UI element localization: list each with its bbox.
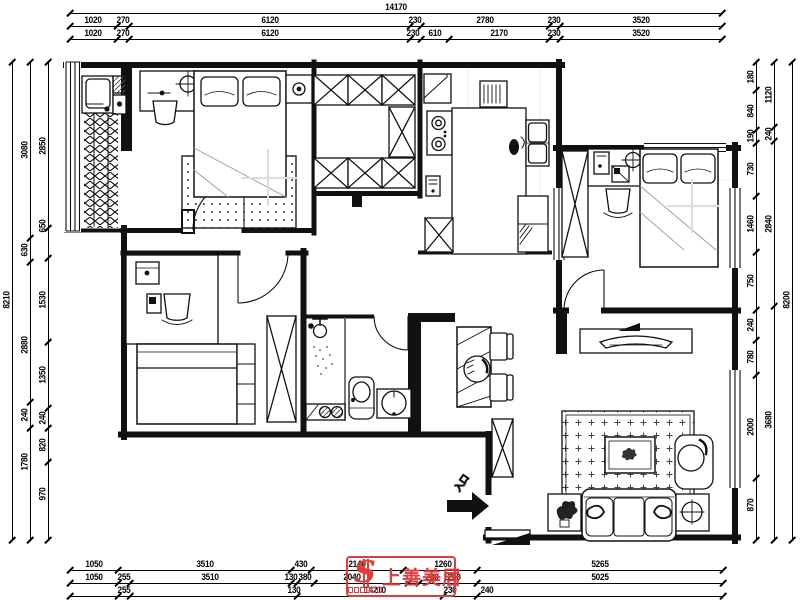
dimension-label: 870 xyxy=(747,499,756,512)
dimension-label: 240 xyxy=(765,128,774,141)
dimension-label: 130 xyxy=(288,586,301,595)
dimension-tick xyxy=(788,536,795,543)
dimension-label: 630 xyxy=(21,244,30,257)
dimension-label: 1020 xyxy=(84,29,101,38)
dimension-label: 8200 xyxy=(783,291,792,308)
dimension-annotations: 1417010202706120230278023035201020270612… xyxy=(0,0,800,600)
dimension-label: 3520 xyxy=(632,16,649,25)
dimension-label: 820 xyxy=(39,439,48,452)
dimension-label: 2880 xyxy=(21,336,30,353)
dimension-label: 6120 xyxy=(261,16,278,25)
dimension-tick xyxy=(718,35,725,42)
dimension-label: 6120 xyxy=(261,29,278,38)
dimension-label: 240 xyxy=(39,412,48,425)
dimension-label: 1020 xyxy=(84,16,101,25)
dimension-label: 230 xyxy=(409,16,422,25)
dimension-line xyxy=(756,62,757,540)
dimension-tick xyxy=(719,566,726,573)
dimension-line xyxy=(12,62,13,540)
dimension-label: 1050 xyxy=(85,560,102,569)
dimension-label: 5265 xyxy=(591,560,608,569)
logo-bar-icon xyxy=(367,559,369,587)
dimension-tick xyxy=(719,579,726,586)
dimension-tick xyxy=(718,22,725,29)
dimension-label: 2840 xyxy=(765,215,774,232)
dimension-label: 255 xyxy=(118,573,131,582)
dimension-label: 1120 xyxy=(765,87,774,104)
dimension-line xyxy=(774,62,775,540)
dimension-label: 240 xyxy=(747,319,756,332)
dimension-tick xyxy=(8,536,15,543)
dimension-line xyxy=(792,62,793,540)
dimension-label: 430 xyxy=(295,560,308,569)
dimension-label: 780 xyxy=(747,351,756,364)
watermark: S 上善美居 xyxy=(346,556,456,597)
dimension-label: 650 xyxy=(39,220,48,233)
dimension-label: 8210 xyxy=(3,291,12,308)
dimension-tick xyxy=(770,536,777,543)
watermark-brand: 上善美居 xyxy=(382,563,462,590)
dimension-label: 730 xyxy=(747,163,756,176)
dimension-label: 2780 xyxy=(476,16,493,25)
dimension-label: 230 xyxy=(548,16,561,25)
dimension-label: 840 xyxy=(747,105,756,118)
dimension-label: 3510 xyxy=(201,573,218,582)
dimension-label: 3510 xyxy=(196,560,213,569)
dimension-label: 1530 xyxy=(39,291,48,308)
dimension-label: 970 xyxy=(39,488,48,501)
dimension-label: 380 xyxy=(299,573,312,582)
dimension-line xyxy=(70,26,722,27)
dimension-label: 3080 xyxy=(21,141,30,158)
dimension-line xyxy=(70,39,722,40)
dimension-label: 240 xyxy=(481,586,494,595)
dimension-label: 2000 xyxy=(747,418,756,435)
dimension-label: 130 xyxy=(285,573,298,582)
dimension-tick xyxy=(44,536,51,543)
dimension-line xyxy=(30,62,31,540)
watermark-logo-letter: S xyxy=(348,560,382,586)
dimension-label: 14170 xyxy=(385,3,407,12)
dimension-label: 180 xyxy=(747,71,756,84)
dimension-label: 610 xyxy=(429,29,442,38)
dimension-label: 230 xyxy=(548,29,561,38)
dimension-tick xyxy=(719,592,726,599)
dimension-line xyxy=(48,62,49,540)
dimension-label: 190 xyxy=(747,130,756,143)
dimension-tick xyxy=(26,536,33,543)
dimension-label: 270 xyxy=(117,16,130,25)
floorplan-page: 入口 1417010202706120230278023035201020270… xyxy=(0,0,800,600)
logo-bar-icon xyxy=(363,559,365,587)
dimension-label: 1780 xyxy=(21,453,30,470)
dimension-label: 230 xyxy=(407,29,420,38)
dimension-tick xyxy=(718,9,725,16)
dimension-label: 2850 xyxy=(39,137,48,154)
dimension-label: 270 xyxy=(117,29,130,38)
watermark-stamp-row xyxy=(348,587,382,593)
dimension-label: 255 xyxy=(118,586,131,595)
dimension-label: 240 xyxy=(21,409,30,422)
dimension-line xyxy=(70,13,722,14)
dimension-label: 1460 xyxy=(747,215,756,232)
watermark-logo: S xyxy=(348,560,382,593)
dimension-label: 3520 xyxy=(632,29,649,38)
dimension-label: 3680 xyxy=(765,411,774,428)
dimension-label: 5025 xyxy=(591,573,608,582)
dimension-tick xyxy=(752,536,759,543)
dimension-label: 1350 xyxy=(39,366,48,383)
dimension-label: 2170 xyxy=(490,29,507,38)
dimension-label: 750 xyxy=(747,275,756,288)
dimension-label: 1050 xyxy=(85,573,102,582)
